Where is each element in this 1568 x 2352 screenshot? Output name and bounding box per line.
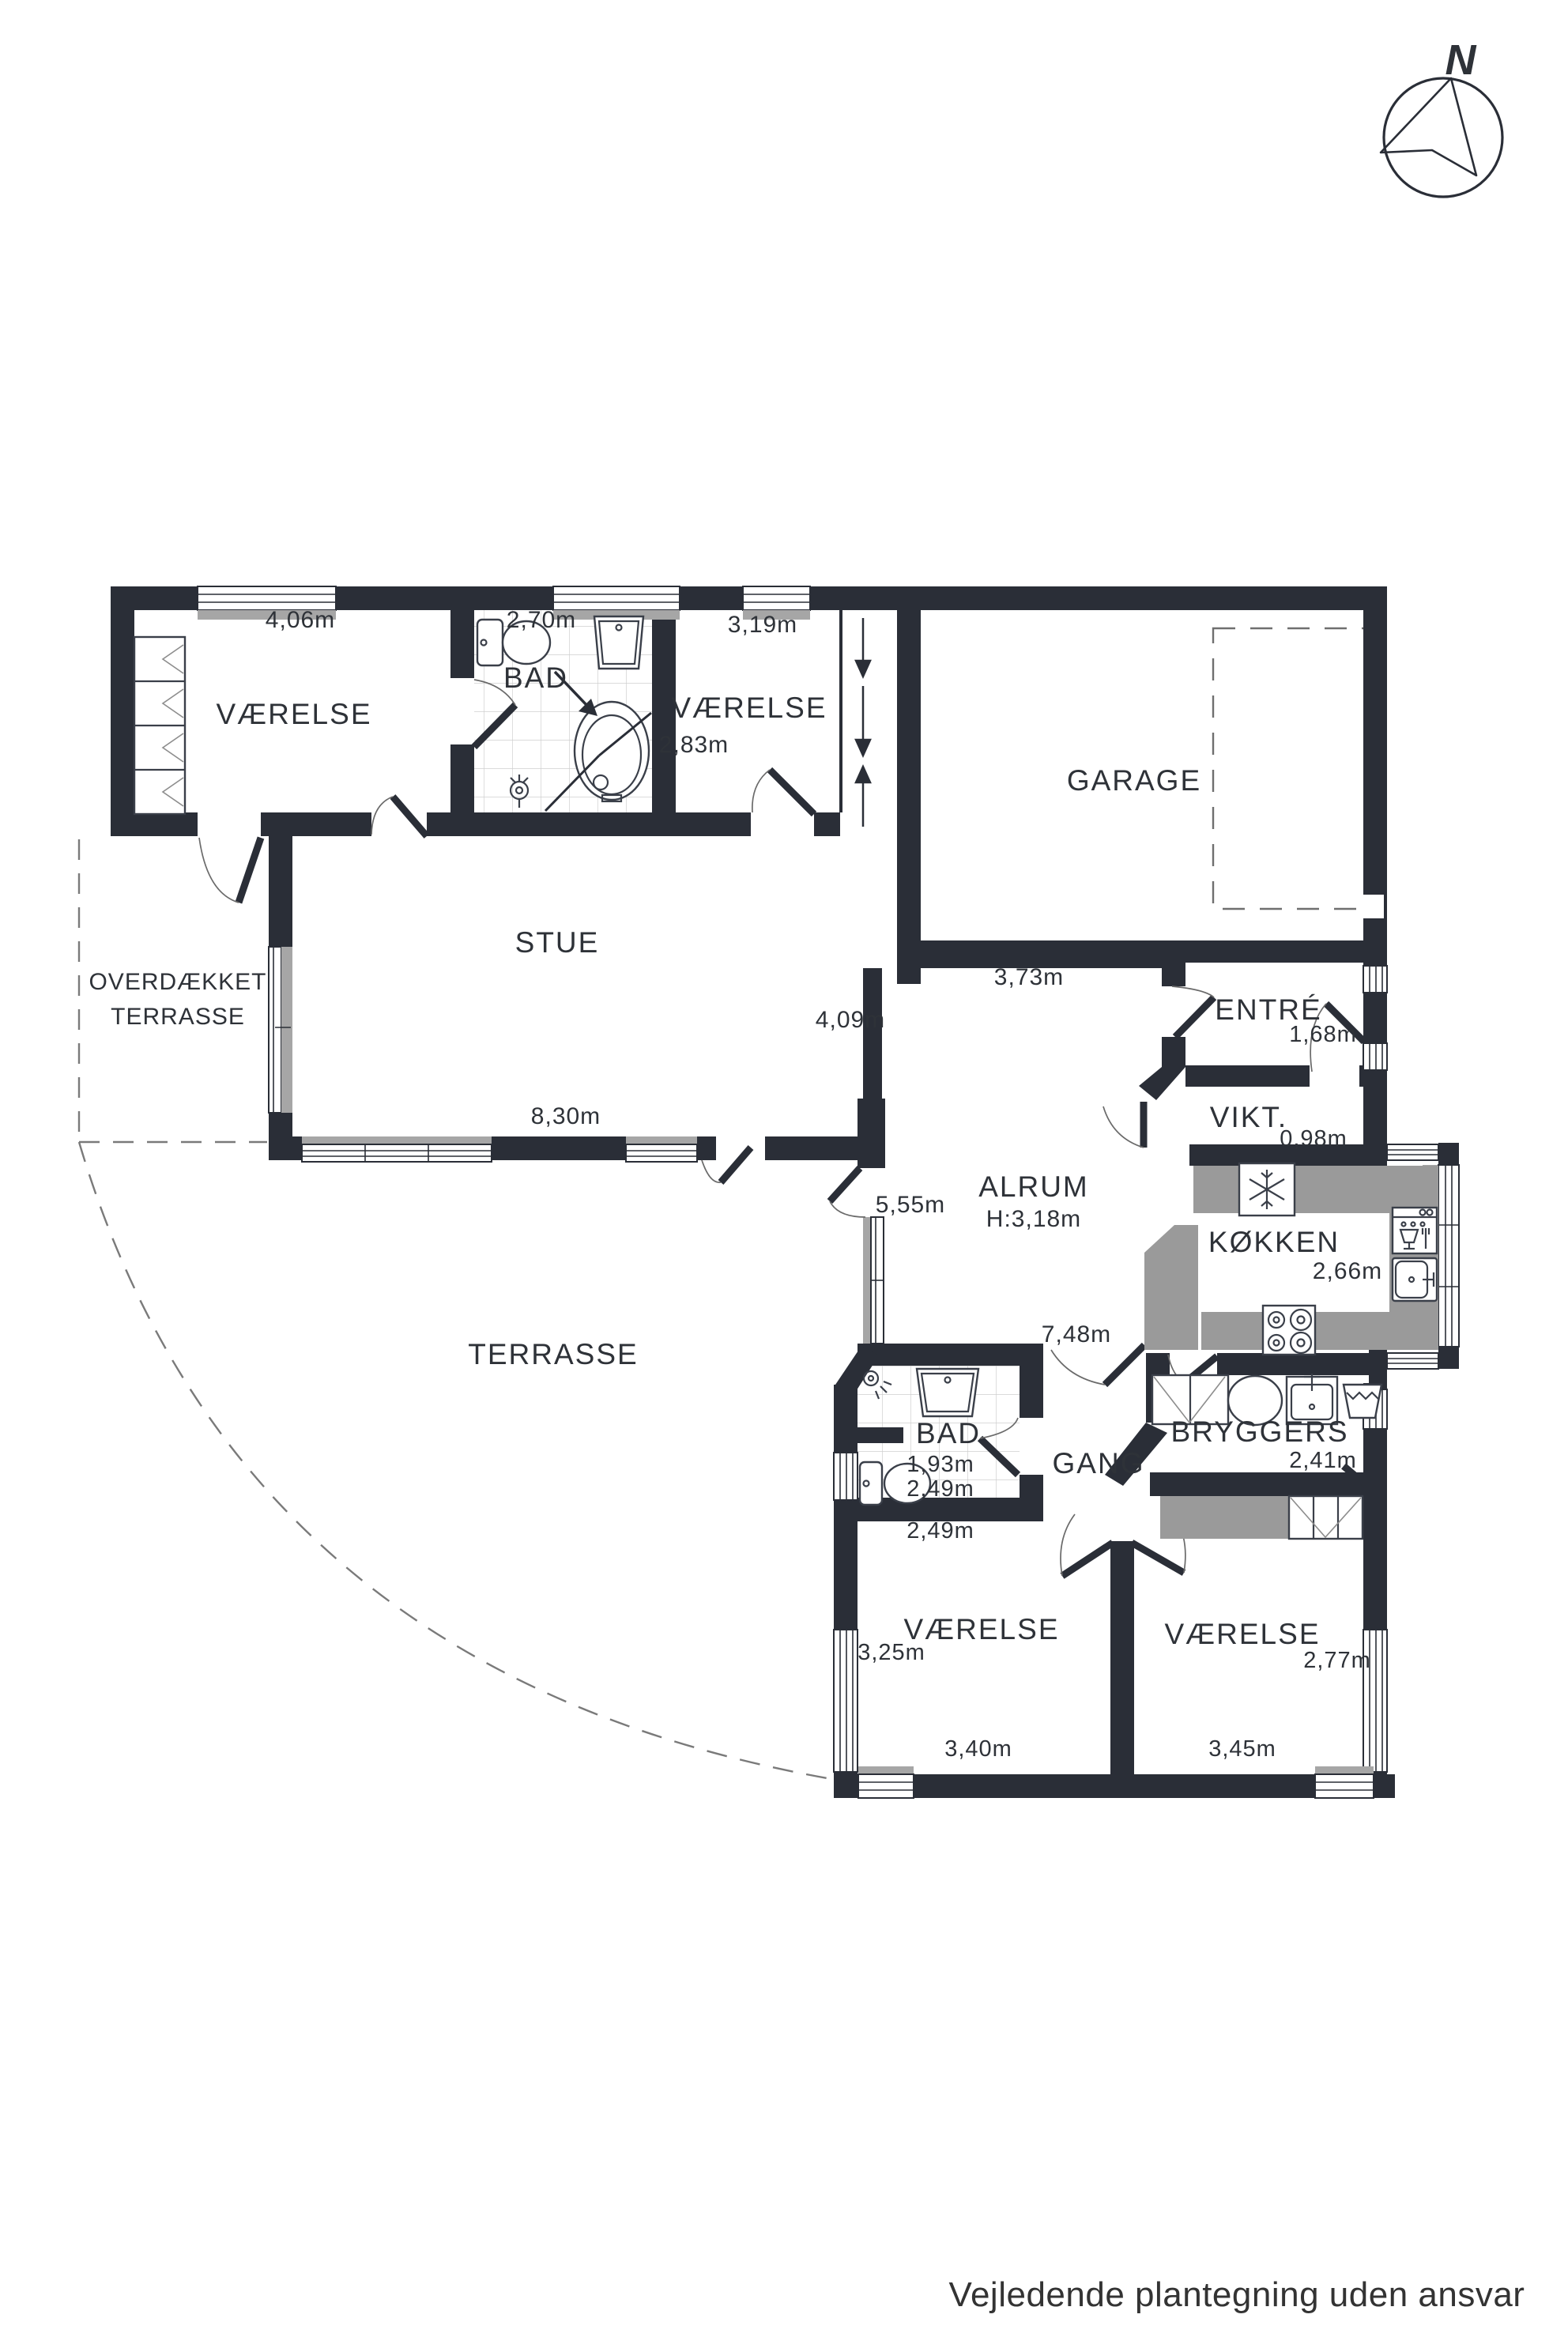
stue-width-label: 8,30m	[531, 1103, 601, 1129]
vaerelse-se-depth-label: 2,77m	[1303, 1648, 1371, 1673]
freezer-icon	[1239, 1163, 1295, 1216]
laundry-basket-icon	[1344, 1385, 1381, 1418]
vaerelse-nw-label: VÆRELSE	[216, 698, 371, 730]
window	[863, 1217, 884, 1344]
compass-north-label: N	[1445, 36, 1477, 84]
koekken-width-label: 2,66m	[1313, 1258, 1382, 1284]
vaerelse-n-label: VÆRELSE	[671, 692, 827, 724]
direction-arrows-icon	[856, 618, 870, 827]
vaerelse-nw-width-label: 4,06m	[266, 607, 335, 633]
vaerelse-se-label: VÆRELSE	[1164, 1618, 1320, 1650]
vaerelse-sw-depth-label: 3,25m	[857, 1640, 925, 1665]
bad-s-w2-label: 2,49m	[906, 1476, 974, 1502]
window	[1363, 966, 1387, 993]
bad-s-w3-label: 2,49m	[906, 1518, 974, 1543]
alrum-width-bottom-label: 7,48m	[1042, 1321, 1111, 1347]
stue-passage-label: 4,09m	[816, 1007, 885, 1033]
bad-n-label: BAD	[503, 661, 568, 694]
window	[1315, 1766, 1374, 1798]
door	[1051, 1345, 1144, 1385]
disclaimer-text: Vejledende plantegning uden ansvar	[949, 2275, 1525, 2314]
door	[1061, 1514, 1113, 1576]
terrasse-label: TERRASSE	[468, 1338, 638, 1370]
sink-icon	[917, 1369, 978, 1416]
room-labels: VÆRELSE 4,06m BAD 2,70m VÆRELSE 3,19m 2,…	[89, 607, 1382, 1762]
door	[1172, 986, 1214, 1037]
vaerelse-n-depth-label: 2,83m	[659, 732, 729, 758]
wardrobe-bryggers	[1160, 1496, 1363, 1539]
window	[834, 1630, 857, 1772]
garage-label: GARAGE	[1067, 764, 1201, 797]
window	[626, 1136, 697, 1162]
bad-s-label: BAD	[916, 1417, 981, 1449]
gang-label: GANG	[1053, 1447, 1145, 1479]
overdaekket-terrasse-label-1: OVERDÆKKET	[89, 969, 266, 995]
vikt-width-label: 0,98m	[1280, 1126, 1347, 1151]
door	[371, 797, 427, 836]
bryggers-label: BRYGGERS	[1170, 1415, 1348, 1448]
window	[302, 1136, 492, 1162]
window	[1387, 1144, 1438, 1160]
stove-icon	[1263, 1306, 1315, 1355]
door	[199, 838, 261, 903]
stue-label: STUE	[515, 926, 600, 959]
alrum-width-top-label: 3,73m	[994, 964, 1064, 990]
overdaekket-terrasse-label-2: TERRASSE	[111, 1004, 245, 1030]
entre-width-label: 1,68m	[1289, 1022, 1357, 1047]
bathtub-icon	[575, 702, 649, 801]
entre-label: ENTRÉ	[1215, 993, 1321, 1026]
vaerelse-se-width-label: 3,45m	[1208, 1736, 1276, 1762]
kitchen-sink-icon	[1393, 1258, 1437, 1301]
window	[858, 1766, 914, 1798]
door	[752, 770, 814, 814]
window	[269, 947, 292, 1113]
window	[834, 1453, 857, 1500]
dishwasher-icon	[1393, 1208, 1437, 1253]
wardrobe-icon	[134, 637, 185, 814]
alrum-door-width-label: 5,55m	[876, 1192, 945, 1218]
garage-dashed-area	[1213, 628, 1367, 909]
koekken-label: KØKKEN	[1208, 1226, 1340, 1258]
vaerelse-sw-width-label: 3,40m	[944, 1736, 1012, 1762]
terrace-boundary	[79, 628, 1367, 1780]
vaerelse-n-width-label: 3,19m	[728, 612, 797, 638]
bad-s-w1-label: 1,93m	[906, 1452, 974, 1477]
floor-plan: N VÆRELSE 4,06m BAD 2,70m VÆRELSE 3,19m …	[0, 0, 1568, 2352]
alrum-label: ALRUM	[978, 1170, 1089, 1203]
window	[1363, 1043, 1387, 1070]
bryggers-width-label: 2,41m	[1289, 1448, 1357, 1473]
vikt-label: VIKT.	[1210, 1101, 1287, 1133]
compass-icon: N	[1381, 36, 1502, 197]
door	[1103, 1102, 1144, 1148]
alrum-height-label: H:3,18m	[986, 1206, 1081, 1232]
bad-n-width-label: 2,70m	[507, 607, 576, 633]
vaerelse-sw-label: VÆRELSE	[903, 1613, 1059, 1645]
sink-icon	[594, 616, 643, 669]
window	[1387, 1353, 1438, 1369]
door	[830, 1168, 865, 1217]
